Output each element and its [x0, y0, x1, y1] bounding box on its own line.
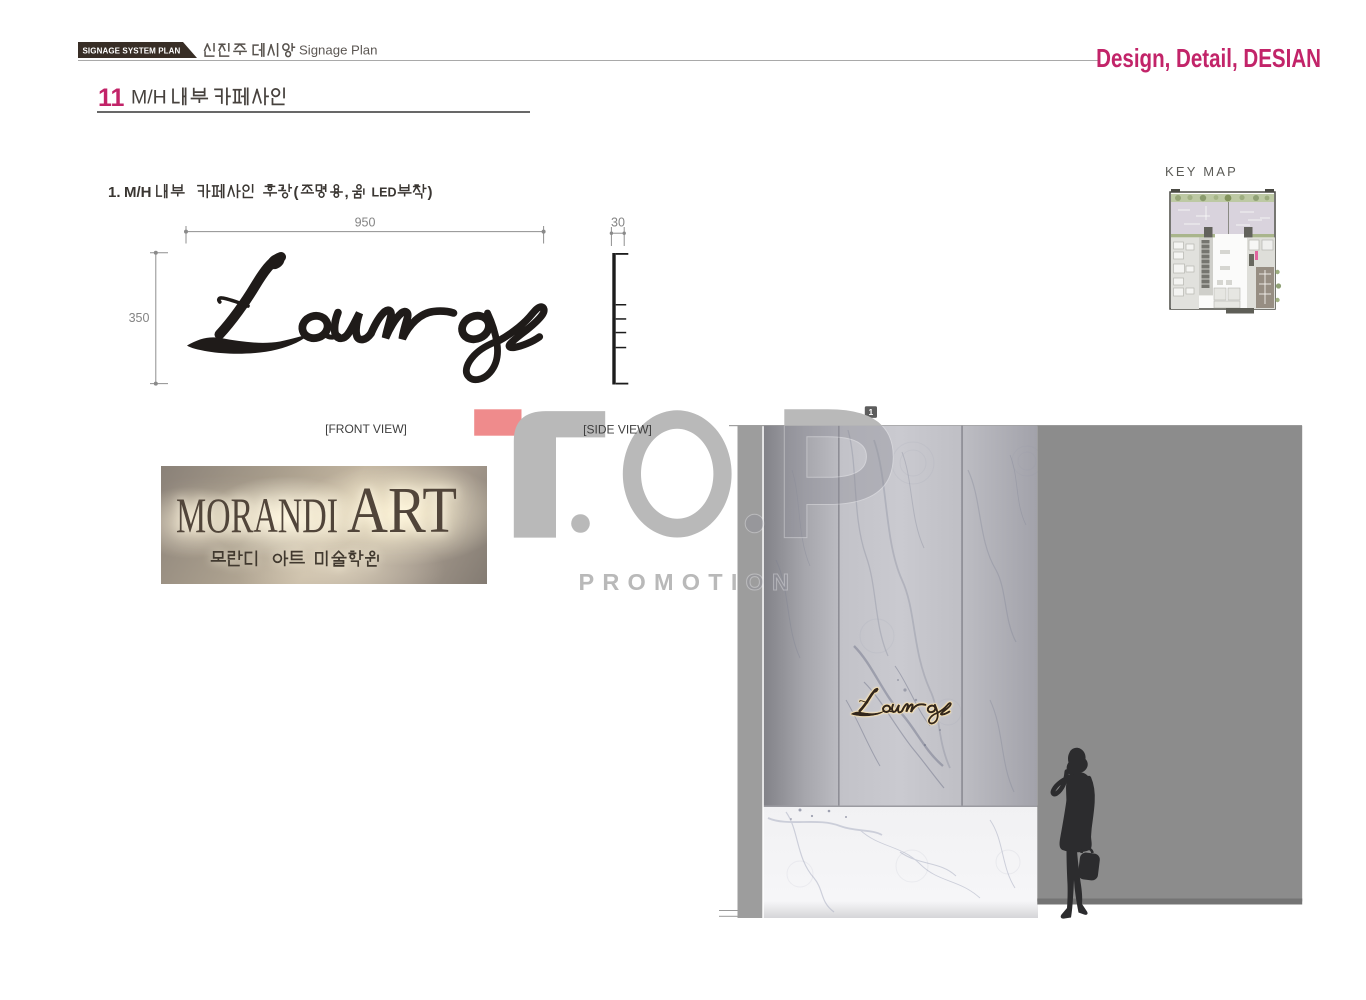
svg-text:30: 30 — [611, 216, 625, 230]
svg-text:[FRONT VIEW]: [FRONT VIEW] — [325, 422, 407, 436]
svg-text:[SIDE VIEW]: [SIDE VIEW] — [583, 423, 652, 437]
svg-text:950: 950 — [355, 216, 376, 230]
svg-text:350: 350 — [129, 311, 150, 325]
